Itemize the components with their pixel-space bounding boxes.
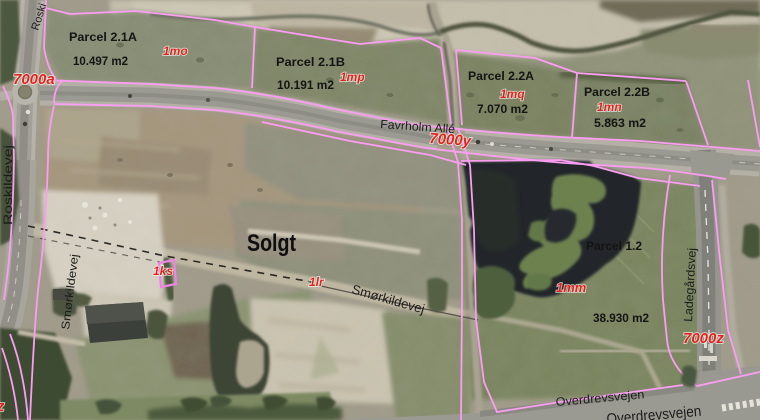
svg-text:Solgt: Solgt xyxy=(247,230,296,257)
svg-text:10.191 m2: 10.191 m2 xyxy=(277,78,334,92)
svg-text:7000y: 7000y xyxy=(429,130,472,150)
svg-text:7.070 m2: 7.070 m2 xyxy=(477,102,528,116)
svg-text:1mn: 1mn xyxy=(597,100,622,114)
svg-text:1mm: 1mm xyxy=(556,280,587,295)
svg-text:38.930 m2: 38.930 m2 xyxy=(593,311,649,325)
svg-text:5.863 m2: 5.863 m2 xyxy=(594,116,646,130)
svg-text:1mq: 1mq xyxy=(500,87,525,101)
svg-text:1mo: 1mo xyxy=(163,44,188,58)
svg-text:Parcel 2.1B: Parcel 2.1B xyxy=(276,55,345,69)
svg-text:1lr: 1lr xyxy=(309,275,325,289)
svg-text:z: z xyxy=(0,398,5,415)
svg-text:1ks: 1ks xyxy=(153,264,173,278)
svg-text:7000a: 7000a xyxy=(13,71,55,88)
svg-text:Parcel 2.1A: Parcel 2.1A xyxy=(69,30,137,44)
svg-text:Parcel 2.2A: Parcel 2.2A xyxy=(468,69,534,83)
svg-text:Roskildevej: Roskildevej xyxy=(1,145,15,225)
svg-text:7000z: 7000z xyxy=(683,330,724,347)
svg-text:Parcel 1.2: Parcel 1.2 xyxy=(586,239,642,253)
svg-text:1mp: 1mp xyxy=(340,70,365,84)
svg-text:Parcel 2.2B: Parcel 2.2B xyxy=(584,85,650,99)
svg-text:10.497 m2: 10.497 m2 xyxy=(73,54,128,68)
